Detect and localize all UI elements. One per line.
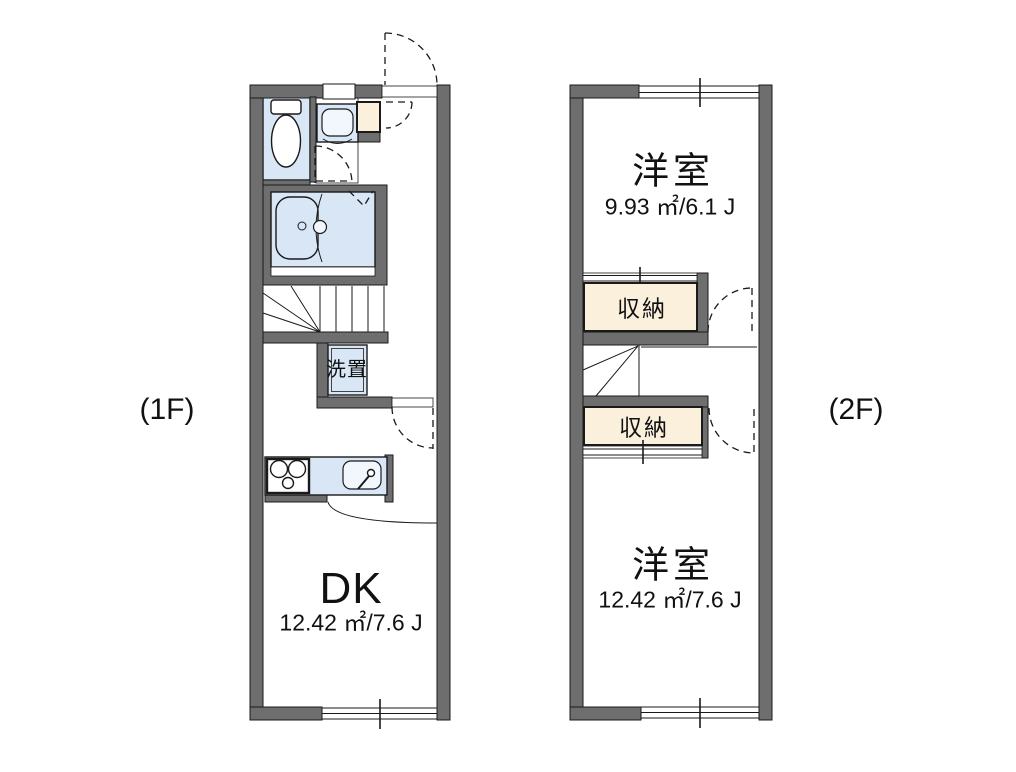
floor-plan-drawing: [0, 0, 1016, 772]
unit-bath: [271, 191, 375, 276]
washbasin-icon: [317, 104, 358, 144]
room-label-bedroom2: 洋室: [632, 547, 714, 584]
kitchen-edge-curve: [328, 502, 437, 523]
room-label-bedroom1: 洋室: [632, 153, 714, 190]
window-2f-bottom: [641, 698, 759, 728]
bathtub-icon: [276, 197, 318, 259]
room-area-bedroom2: 12.42 ㎡/7.6 J: [598, 589, 741, 612]
window-1f-bottom: [322, 699, 437, 729]
window-2f-top: [639, 78, 759, 107]
room-area-dk: 12.42 ㎡/7.6 J: [279, 612, 422, 635]
stove-icon: [267, 459, 309, 493]
room-label-storage2: 収納: [619, 417, 669, 440]
floor-label-1f: (1F): [140, 395, 195, 425]
sink-icon: [343, 461, 381, 489]
door-arc-2f-upper: [708, 288, 752, 332]
room-label-dk: DK: [319, 567, 382, 611]
room-area-bedroom1: 9.93 ㎡/6.1 J: [605, 196, 735, 219]
dk-door-arc: [392, 407, 433, 449]
dk-door-threshold: [392, 398, 433, 407]
entrance-door-arc: [385, 33, 437, 128]
floor-plan-canvas: (1F) (2F) DK 12.42 ㎡/7.6 J 洗置 洋室 9.93 ㎡/…: [0, 0, 1016, 772]
window-1f-top: [323, 84, 355, 99]
stairs-2f: [583, 345, 757, 396]
toilet-icon: [271, 100, 301, 167]
floor-label-2f: (2F): [829, 395, 884, 425]
stairs-1f: [263, 286, 384, 332]
room-label-laundry: 洗置: [326, 360, 368, 380]
room-label-storage1: 収納: [617, 298, 667, 321]
shoe-cabinet: [357, 102, 380, 132]
entrance-threshold: [382, 86, 437, 97]
kitchen-counter: [265, 457, 437, 523]
door-arc-2f-lower: [709, 408, 754, 453]
